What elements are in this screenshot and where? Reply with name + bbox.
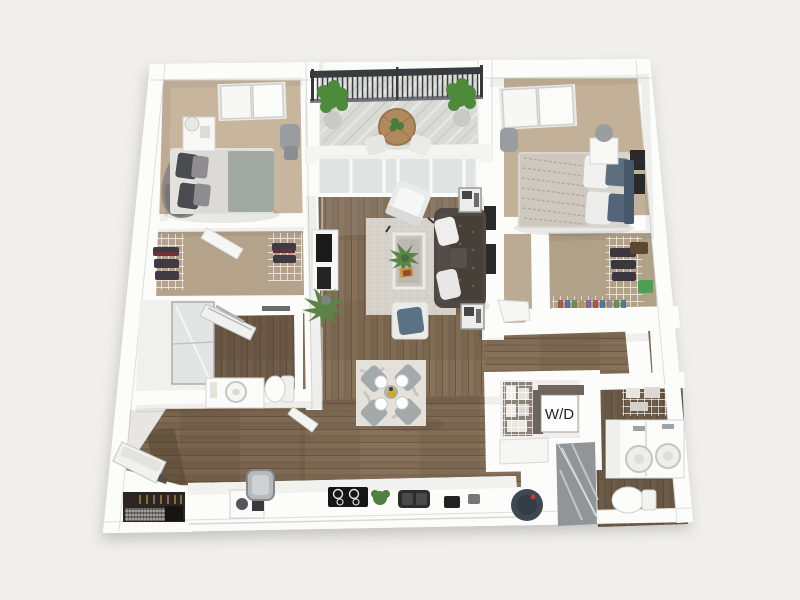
svg-text:W/D: W/D — [545, 406, 574, 423]
